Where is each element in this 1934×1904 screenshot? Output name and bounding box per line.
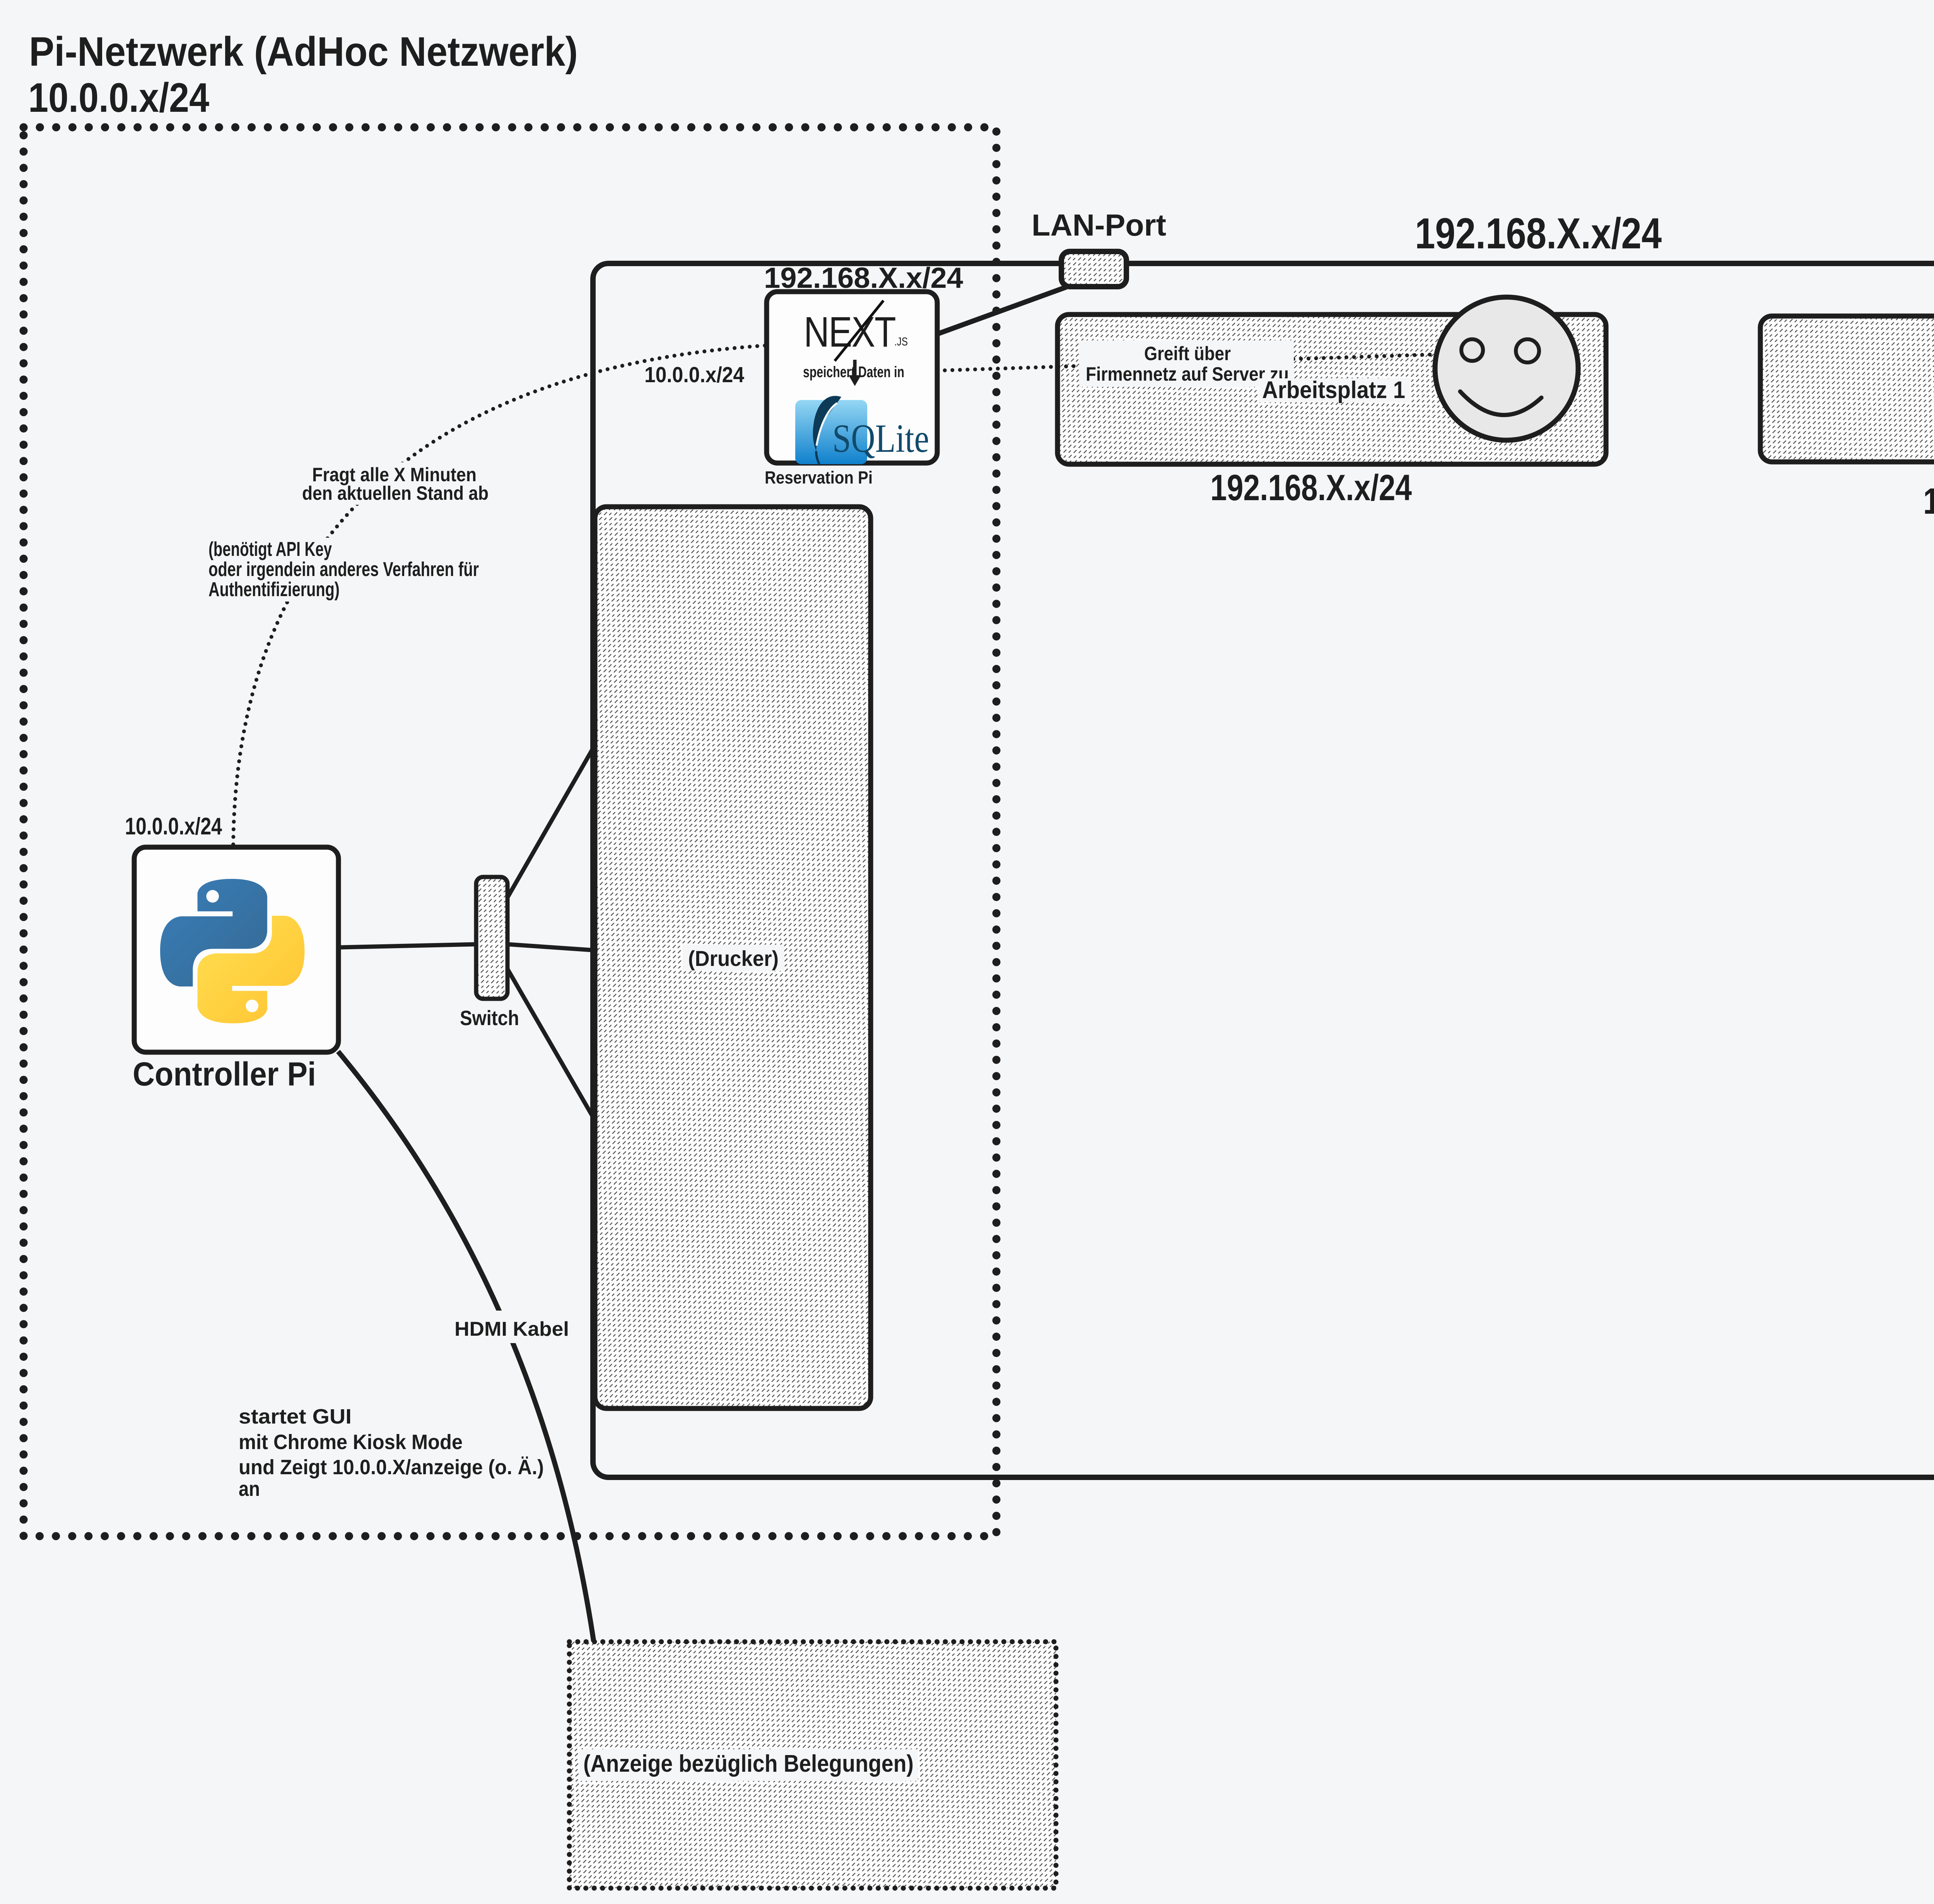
svg-text:LAN-Port: LAN-Port <box>1032 208 1166 242</box>
svg-text:192.168.X.x/24: 192.168.X.x/24 <box>1210 467 1412 508</box>
svg-text:(Anzeige bezüglich Belegungen): (Anzeige bezüglich Belegungen) <box>583 1750 914 1777</box>
svg-text:Firmennetz auf Server zu: Firmennetz auf Server zu <box>1086 363 1289 385</box>
svg-text:HDMI Kabel: HDMI Kabel <box>454 1318 569 1340</box>
svg-text:den aktuellen Stand ab: den aktuellen Stand ab <box>302 482 489 504</box>
svg-text:Controller Pi: Controller Pi <box>133 1056 316 1093</box>
svg-text:(benötigt API Key: (benötigt API Key <box>208 538 332 561</box>
svg-text:an: an <box>239 1477 260 1501</box>
svg-text:Pi-Netzwerk (AdHoc Netzwerk): Pi-Netzwerk (AdHoc Netzwerk) <box>29 28 578 75</box>
svg-text:192.168.X.x/24: 192.168.X.x/24 <box>764 262 963 294</box>
svg-text:oder irgendein anderes Verfahr: oder irgendein anderes Verfahren für <box>208 558 479 581</box>
svg-text:192.168.X.x/24: 192.168.X.x/24 <box>1923 481 1934 522</box>
svg-text:NEXT: NEXT <box>804 308 895 356</box>
svg-text:Reservation Pi: Reservation Pi <box>765 468 873 487</box>
svg-text:.JS: .JS <box>894 335 908 348</box>
svg-text:10.0.0.x/24: 10.0.0.x/24 <box>644 362 744 387</box>
svg-text:192.168.X.x/24: 192.168.X.x/24 <box>1415 209 1662 258</box>
svg-text:Authentifizierung): Authentifizierung) <box>208 578 340 601</box>
svg-text:startet GUI: startet GUI <box>239 1405 352 1428</box>
svg-text:mit Chrome Kiosk Mode: mit Chrome Kiosk Mode <box>239 1431 463 1454</box>
svg-text:Switch: Switch <box>460 1007 519 1030</box>
svg-text:Arbeitsplatz 1: Arbeitsplatz 1 <box>1262 377 1405 403</box>
svg-text:und Zeigt 10.0.0.X/anzeige (o.: und Zeigt 10.0.0.X/anzeige (o. Ä.) <box>239 1456 544 1479</box>
svg-text:SQLite: SQLite <box>832 416 929 461</box>
svg-text:10.0.0.x/24: 10.0.0.x/24 <box>125 813 222 840</box>
svg-text:10.0.0.x/24: 10.0.0.x/24 <box>28 74 209 121</box>
svg-text:Greift über: Greift über <box>1144 343 1231 364</box>
svg-text:(Drucker): (Drucker) <box>688 946 779 971</box>
